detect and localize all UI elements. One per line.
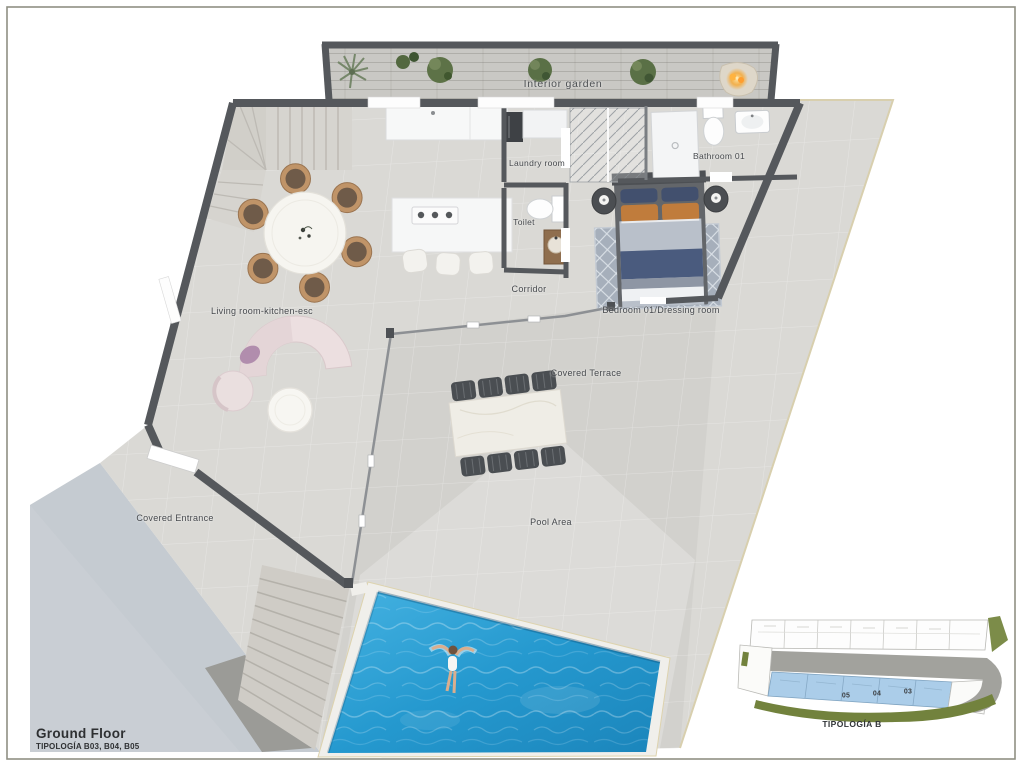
page-title: Ground Floor <box>36 726 139 741</box>
bed <box>612 170 711 307</box>
coffee-table <box>268 388 312 432</box>
floor-plan-page: Interior garden Laundry room Bathroom 01… <box>0 0 1024 768</box>
laundry-fixtures <box>505 110 567 142</box>
title-block: Ground Floor TIPOLOGÍA B03, B04, B05 <box>36 726 139 751</box>
outdoor-dining-set <box>447 370 570 478</box>
room-label-corridor: Corridor <box>512 284 547 294</box>
room-label-laundry-room: Laundry room <box>509 158 565 168</box>
room-label-bathroom-01: Bathroom 01 <box>693 151 745 161</box>
page-subtitle: TIPOLOGÍA B03, B04, B05 <box>36 742 139 751</box>
room-label-pool-area: Pool Area <box>530 517 572 527</box>
room-label-interior-garden: Interior garden <box>524 78 603 90</box>
inset-upper-units <box>750 620 988 650</box>
kitchen-counter <box>386 106 508 140</box>
room-label-covered-entrance: Covered Entrance <box>136 513 213 523</box>
round-armchair <box>213 371 253 411</box>
inset-unit-number-04: 04 <box>873 691 881 698</box>
inset-unit-number-03: 03 <box>904 689 912 696</box>
fire-pit <box>720 62 758 96</box>
room-label-bedroom-01: Bedroom 01/Dressing room <box>602 305 719 315</box>
room-label-toilet: Toilet <box>513 217 535 227</box>
floorplan-drawing <box>0 0 1024 768</box>
inset-caption: TIPOLOGÍA B <box>822 719 881 729</box>
wardrobe-glass-area <box>570 108 646 182</box>
interior-garden-strip <box>322 42 778 100</box>
room-label-living-room: Living room-kitchen-esc <box>211 306 313 316</box>
site-plan-inset <box>738 616 1008 722</box>
room-label-covered-terrace: Covered Terrace <box>551 368 622 378</box>
inset-unit-number-05: 05 <box>842 693 850 700</box>
